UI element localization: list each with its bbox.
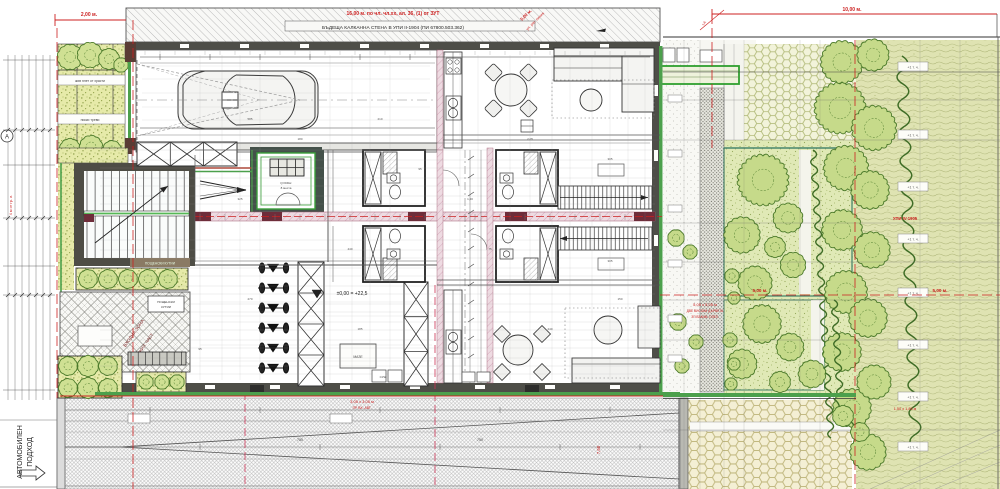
- svg-text:+1 т. ч.: +1 т. ч.: [907, 238, 918, 242]
- svg-text:ПР ВХ. АВТ.: ПР ВХ. АВТ.: [353, 406, 372, 410]
- svg-text:95: 95: [198, 347, 202, 351]
- svg-text:7,50: 7,50: [596, 445, 601, 454]
- svg-text:ПОЩЕНСКИ: ПОЩЕНСКИ: [157, 300, 175, 304]
- svg-text:5,00 м.: 5,00 м.: [933, 288, 948, 293]
- svg-text:СУШ: СУШ: [380, 375, 387, 379]
- svg-text:5,00 м.: 5,00 м.: [753, 288, 768, 293]
- svg-text:ниски треви: ниски треви: [81, 118, 100, 122]
- svg-text:10,00 м.: 10,00 м.: [843, 7, 863, 13]
- svg-text:75: 75: [488, 247, 492, 251]
- svg-text:305: 305: [607, 259, 612, 263]
- svg-text:+1 т. ч.: +1 т. ч.: [907, 186, 918, 190]
- svg-text:750: 750: [297, 438, 303, 442]
- svg-text:+1 т. ч.: +1 т. ч.: [907, 396, 918, 400]
- svg-text:95: 95: [418, 167, 422, 171]
- svg-text:ПОЩЕНСКИ КУТИИ: ПОЩЕНСКИ КУТИИ: [145, 262, 176, 266]
- svg-text:ПОДХОД: ПОДХОД: [27, 437, 34, 467]
- svg-text:МАЗЕ: МАЗЕ: [353, 355, 363, 359]
- svg-text:210: 210: [377, 117, 382, 121]
- svg-text:2,05: 2,05: [527, 137, 533, 141]
- svg-text:180: 180: [297, 137, 302, 141]
- svg-text:АВТОМОБИЛЕН: АВТОМОБИЛЕН: [17, 425, 24, 479]
- svg-text:Q=630кг: Q=630кг: [280, 181, 292, 185]
- svg-text:ЗП ВЗАИМ. ОЗЕЛ.: ЗП ВЗАИМ. ОЗЕЛ.: [691, 315, 719, 319]
- svg-text:УПИ IV-1905: УПИ IV-1905: [893, 216, 918, 221]
- svg-text:585: 585: [247, 117, 252, 121]
- svg-text:1,20: 1,20: [467, 197, 473, 201]
- svg-text:+1 т. ч.: +1 т. ч.: [907, 134, 918, 138]
- svg-text:+1 т. ч.: +1 т. ч.: [907, 446, 918, 450]
- svg-text:185: 185: [357, 327, 362, 331]
- svg-text:1,50 х 1,85 м: 1,50 х 1,85 м: [894, 407, 917, 411]
- svg-text:A: A: [5, 135, 9, 141]
- svg-text:325: 325: [237, 197, 242, 201]
- svg-text:240: 240: [547, 327, 552, 331]
- svg-text:150: 150: [617, 297, 622, 301]
- svg-text:+1 т. ч.: +1 т. ч.: [907, 344, 918, 348]
- svg-text:КУТИИ: КУТИИ: [161, 305, 171, 309]
- svg-text:305: 305: [607, 157, 612, 161]
- svg-text:БЪДЕЩА КАЛКАННА СТЕНА В УПИ II: БЪДЕЩА КАЛКАННА СТЕНА В УПИ II-1904 (ПИ …: [322, 25, 464, 31]
- svg-text:16,00 м. по чл. чл.хх, ал. 36,: 16,00 м. по чл. чл.хх, ал. 36, (1) от ЗУ…: [347, 11, 440, 17]
- svg-text:жив плет от храсти: жив плет от храсти: [75, 79, 105, 83]
- svg-text:+1 т. ч.: +1 т. ч.: [907, 66, 918, 70]
- svg-text:440: 440: [347, 247, 352, 251]
- svg-text:4 м от гр. л.: 4 м от гр. л.: [9, 195, 13, 216]
- svg-text:270: 270: [247, 297, 252, 301]
- svg-text:750: 750: [477, 438, 483, 442]
- svg-text:5,05 х 5,05 м: 5,05 х 5,05 м: [693, 302, 717, 307]
- svg-text:2,00 м.: 2,00 м.: [81, 12, 98, 18]
- svg-text:3,05 х 3,05 м: 3,05 х 3,05 м: [350, 399, 374, 404]
- svg-text:ДВЕ ВИСОКИ ДЪРВЕТА: ДВЕ ВИСОКИ ДЪРВЕТА: [687, 309, 724, 313]
- svg-text:8 места: 8 места: [281, 186, 292, 190]
- svg-text:±0,00 = +22,5: ±0,00 = +22,5: [337, 291, 368, 297]
